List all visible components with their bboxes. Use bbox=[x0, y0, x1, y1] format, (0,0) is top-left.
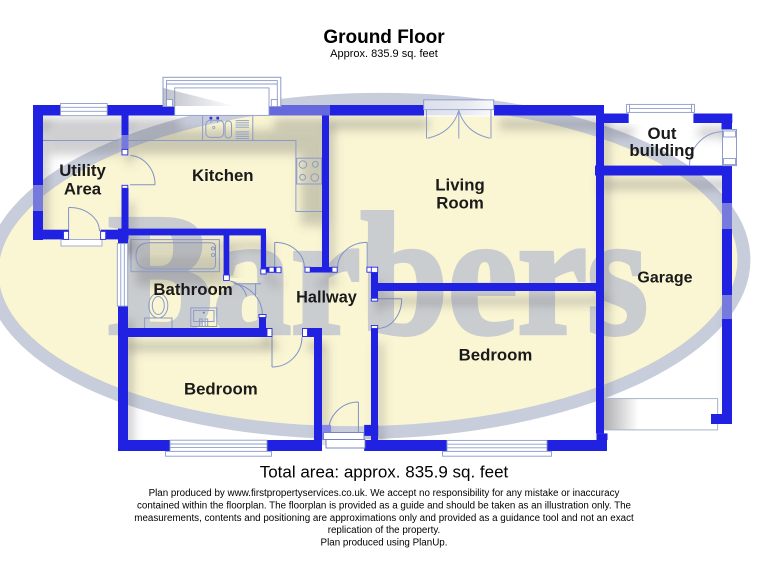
svg-text:Hallway: Hallway bbox=[296, 289, 357, 307]
svg-text:Kitchen: Kitchen bbox=[192, 166, 254, 185]
svg-text:Bathroom: Bathroom bbox=[153, 280, 232, 299]
svg-text:Ground Floor: Ground Floor bbox=[323, 27, 445, 48]
svg-text:Room: Room bbox=[436, 194, 484, 213]
svg-text:building: building bbox=[629, 141, 694, 160]
svg-text:Plan produced by www.firstprop: Plan produced by www.firstpropertyservic… bbox=[149, 488, 620, 499]
svg-text:Plan produced using PlanUp.: Plan produced using PlanUp. bbox=[321, 538, 448, 549]
svg-text:Living: Living bbox=[435, 176, 484, 195]
svg-text:replication of the property.: replication of the property. bbox=[328, 525, 441, 536]
svg-text:Area: Area bbox=[64, 180, 102, 199]
svg-text:Approx. 835.9 sq. feet: Approx. 835.9 sq. feet bbox=[330, 48, 438, 60]
svg-text:measurements, contents and pos: measurements, contents and positioning a… bbox=[134, 513, 634, 524]
svg-text:Utility: Utility bbox=[59, 161, 106, 180]
svg-text:Garage: Garage bbox=[637, 269, 692, 286]
svg-text:Bedroom: Bedroom bbox=[459, 346, 533, 365]
svg-text:contained within the floorplan: contained within the floorplan. The floo… bbox=[137, 501, 632, 512]
svg-text:Bedroom: Bedroom bbox=[184, 380, 258, 399]
svg-text:Total area: approx. 835.9 sq.: Total area: approx. 835.9 sq. feet bbox=[260, 463, 509, 482]
